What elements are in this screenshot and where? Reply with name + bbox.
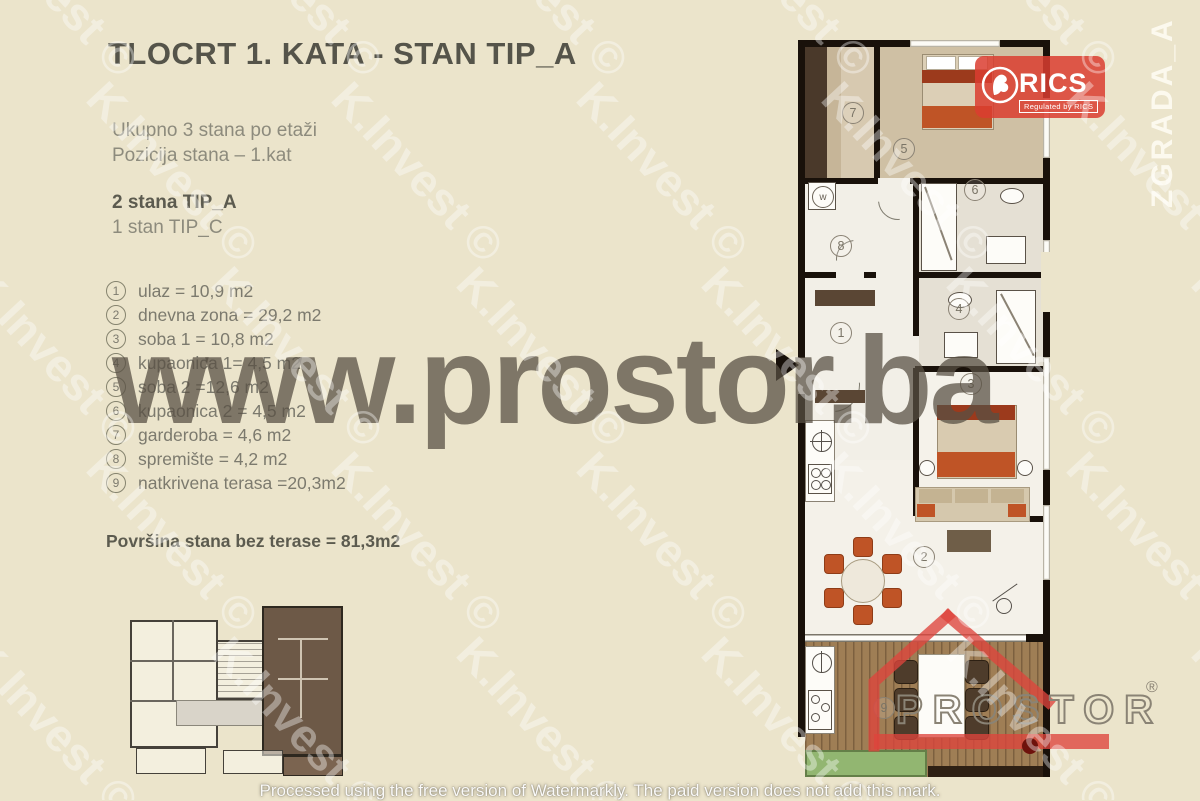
shower bbox=[996, 290, 1036, 364]
sink-vanity bbox=[986, 236, 1026, 264]
washer-drum: w bbox=[812, 186, 834, 208]
list-item: 9natkrivena terasa =20,3m2 bbox=[106, 471, 346, 495]
sink-cross bbox=[821, 651, 822, 673]
burner bbox=[821, 703, 830, 712]
prostor-watermark-text: www.prostor.ba bbox=[112, 310, 996, 452]
sofa-cushion bbox=[919, 489, 952, 503]
sofa-accent bbox=[917, 504, 935, 517]
keyplan-stair-core bbox=[216, 640, 264, 700]
closet-strip bbox=[815, 290, 875, 306]
keyplan-highlighted-unit bbox=[262, 606, 343, 756]
rics-logo: RICS Regulated by RICS bbox=[975, 56, 1105, 118]
dining-chair bbox=[882, 588, 902, 608]
bed-blanket bbox=[937, 452, 1015, 477]
keyplan-line bbox=[172, 620, 174, 700]
info-position: Pozicija stana – 1.kat bbox=[112, 145, 292, 167]
keyplan-terrace-dark bbox=[283, 756, 343, 776]
room-number-badge: 1 bbox=[106, 281, 126, 301]
room-number-badge: 9 bbox=[106, 473, 126, 493]
rics-tagline: Regulated by RICS bbox=[1019, 100, 1098, 113]
room-label: natkrivena terasa =20,3m2 bbox=[138, 473, 346, 494]
watermark-tile: K.Invest © bbox=[1181, 256, 1200, 458]
tv-cabinet bbox=[947, 530, 991, 552]
dining-chair bbox=[853, 537, 873, 557]
nightstand bbox=[919, 460, 935, 476]
plan-room-number: 6 bbox=[964, 179, 986, 201]
nightstand bbox=[1017, 460, 1033, 476]
window bbox=[1043, 357, 1050, 470]
keyplan-line bbox=[130, 660, 218, 662]
keyplan-line bbox=[278, 678, 328, 680]
page-title: TLOCRT 1. KATA - STAN TIP_A bbox=[108, 36, 577, 72]
room-number-badge: 8 bbox=[106, 449, 126, 469]
toilet bbox=[1000, 188, 1024, 204]
sofa-cushion bbox=[991, 489, 1024, 503]
bed-pillow bbox=[926, 56, 956, 70]
watermark-tile: K.Invest © bbox=[1181, 0, 1200, 88]
info-total-units: Ukupno 3 stana po etaži bbox=[112, 120, 317, 142]
dining-chair bbox=[824, 554, 844, 574]
burner bbox=[811, 480, 821, 490]
prostor-registered-mark: ® bbox=[1146, 679, 1158, 696]
rics-lion-icon bbox=[980, 65, 1020, 105]
plan-room-number: 5 bbox=[893, 138, 915, 160]
facade-notch bbox=[1041, 252, 1050, 312]
rics-wordmark: RICS bbox=[1019, 68, 1088, 99]
watermark-tile: K.Invest © bbox=[321, 71, 514, 273]
prostor-baseline-bar bbox=[874, 734, 1109, 749]
info-count-tip-c: 1 stan TIP_C bbox=[112, 217, 223, 239]
keyplan-line bbox=[300, 638, 302, 718]
outdoor-sink-icon bbox=[812, 653, 832, 673]
watermark-tile: K.Invest © bbox=[446, 626, 639, 800]
sofa-cushion bbox=[955, 489, 988, 503]
watermark-tile: K.Invest © bbox=[76, 71, 269, 273]
info-count-tip-a: 2 stana TIP_A bbox=[112, 192, 237, 214]
plan-room-number: 8 bbox=[830, 235, 852, 257]
keyplan-terrace bbox=[136, 748, 206, 774]
dining-chair bbox=[824, 588, 844, 608]
room-label: ulaz = 10,9 m2 bbox=[138, 281, 253, 302]
plan-room-number: 7 bbox=[842, 102, 864, 124]
prostor-dot bbox=[1022, 738, 1038, 754]
sofa-accent bbox=[1008, 504, 1026, 517]
window bbox=[910, 40, 1000, 47]
wall bbox=[798, 642, 805, 737]
prostor-logo: PROSTOR ® bbox=[858, 606, 1200, 771]
burner bbox=[811, 468, 821, 478]
keyplan-left-wing bbox=[130, 620, 218, 748]
key-plan bbox=[128, 598, 346, 776]
list-item: 1ulaz = 10,9 m2 bbox=[106, 279, 346, 303]
burner bbox=[811, 695, 820, 704]
keyplan-terrace bbox=[223, 750, 283, 774]
watermark-tile: K.Invest © bbox=[566, 441, 759, 643]
net-area-summary: Površina stana bez terase = 81,3m2 bbox=[106, 531, 400, 552]
watermarkly-notice: Processed using the free version of Wate… bbox=[0, 781, 1200, 801]
burner bbox=[821, 480, 831, 490]
burner bbox=[821, 468, 831, 478]
watermark-tile: K.Invest © bbox=[566, 71, 759, 273]
plan-room-number: 2 bbox=[913, 546, 935, 568]
dining-chair bbox=[882, 554, 902, 574]
building-label: ZGRADA_A bbox=[1146, 8, 1180, 208]
dining-table bbox=[841, 559, 885, 603]
prostor-wordmark: PROSTOR bbox=[896, 688, 1163, 732]
keyplan-line bbox=[278, 638, 328, 640]
window bbox=[1043, 505, 1050, 580]
burner bbox=[811, 713, 820, 722]
